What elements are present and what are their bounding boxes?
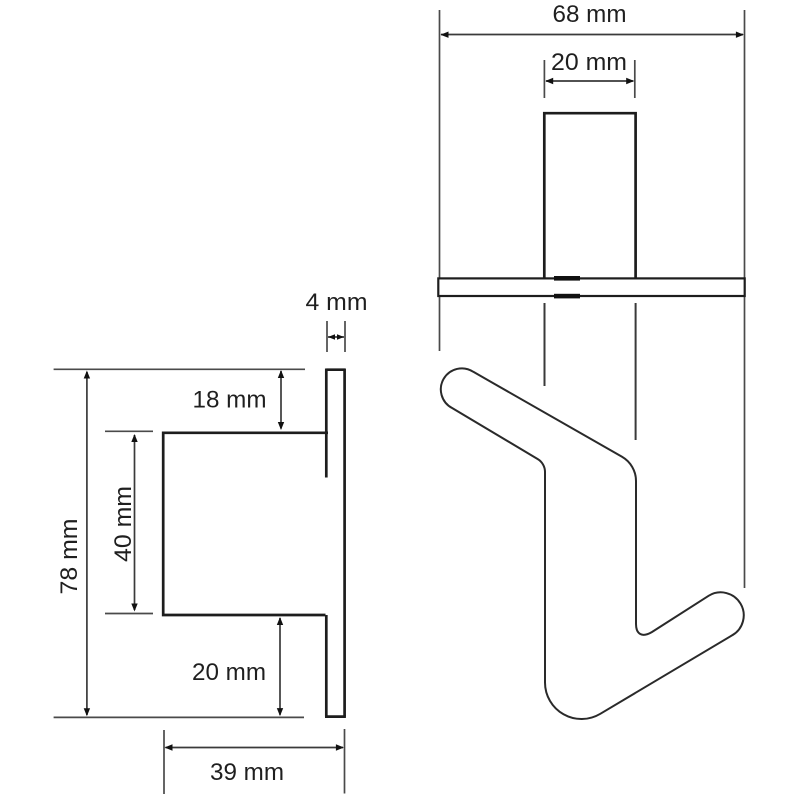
svg-text:68 mm: 68 mm	[553, 1, 627, 28]
svg-text:20 mm: 20 mm	[192, 659, 266, 686]
svg-text:4 mm: 4 mm	[306, 289, 368, 316]
svg-text:18 mm: 18 mm	[193, 387, 267, 414]
svg-text:39 mm: 39 mm	[210, 759, 284, 786]
svg-text:20 mm: 20 mm	[551, 49, 627, 76]
svg-text:78 mm: 78 mm	[56, 519, 83, 595]
svg-text:40 mm: 40 mm	[110, 486, 137, 562]
